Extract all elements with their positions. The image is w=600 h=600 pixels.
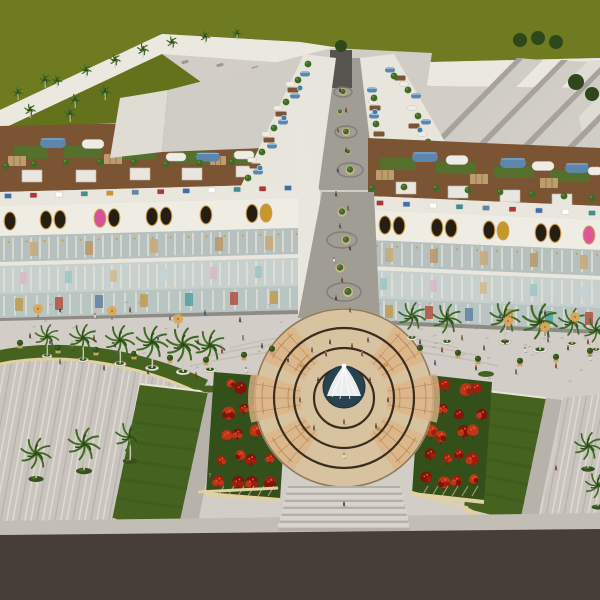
roof-tree: [63, 159, 70, 166]
tree: [549, 35, 563, 49]
shop-sign: [106, 191, 113, 196]
roof-cabin: [182, 168, 202, 180]
white-canopy: [274, 106, 283, 111]
roof-tree: [415, 113, 422, 120]
storefront-interior: [480, 251, 488, 265]
brand-oval-sign: [379, 216, 391, 234]
entry-steps: [278, 486, 410, 531]
shop-sign: [132, 190, 139, 195]
pergola: [470, 174, 488, 184]
storefront-interior: [185, 293, 193, 306]
roof-tree: [283, 99, 290, 106]
shop-sign: [259, 186, 266, 191]
planter-shrub: [131, 351, 137, 360]
roof-cabin: [76, 170, 96, 182]
roof-tree: [401, 184, 408, 191]
storefront-interior: [215, 237, 223, 251]
roof-terrace: [264, 138, 275, 143]
brand-oval-sign: [260, 204, 272, 222]
step: [285, 495, 403, 500]
shop-sign: [483, 206, 490, 211]
roof-tree: [305, 61, 312, 68]
roof-tree: [373, 121, 380, 128]
shop-sign: [234, 187, 241, 192]
storefront-interior: [425, 306, 433, 319]
shop-sign: [456, 204, 463, 209]
shop-sign: [5, 194, 12, 199]
umbrella: [297, 85, 303, 91]
planter-shrub: [17, 340, 23, 349]
roof-tree: [295, 77, 302, 84]
roof-tree: [369, 185, 376, 192]
planter-shrub: [417, 345, 423, 354]
roof-tree: [465, 187, 472, 194]
planter-shrub: [203, 357, 209, 366]
storefront-interior: [210, 267, 217, 279]
storefront-interior: [380, 278, 387, 290]
white-canopy: [408, 106, 417, 111]
white-canopy: [446, 156, 468, 165]
roof-tree: [163, 161, 170, 168]
brand-oval-sign: [246, 204, 258, 222]
storefront-interior: [110, 270, 117, 282]
roof-tree: [97, 159, 104, 166]
planter-shrub: [93, 347, 99, 356]
brand-oval-sign: [445, 219, 457, 237]
storefront-interior: [430, 249, 438, 263]
planter-shrub: [269, 346, 275, 355]
roof-terrace: [409, 124, 420, 129]
storefront-interior: [580, 286, 587, 298]
storefront-interior: [530, 284, 537, 296]
planter-shrub: [517, 358, 523, 367]
white-canopy: [262, 132, 271, 137]
step: [282, 509, 407, 514]
storefront-interior: [95, 295, 103, 308]
shop-sign: [403, 202, 410, 207]
shop-sign: [30, 193, 37, 198]
white-canopy: [400, 82, 409, 87]
storefront-interior: [430, 280, 437, 292]
blue-canopy: [565, 163, 589, 173]
shop-sign: [55, 192, 62, 197]
roof-tree: [271, 125, 278, 132]
spray-crest: [342, 364, 347, 369]
roof-tree: [131, 159, 138, 166]
roof-tree: [245, 175, 252, 182]
pergola: [540, 178, 558, 188]
foreground-road: [0, 529, 600, 600]
shop-sign: [183, 188, 190, 193]
white-canopy: [532, 162, 554, 171]
roof-cabin: [130, 168, 150, 180]
storefront-interior: [580, 255, 588, 269]
brand-oval-sign: [549, 224, 561, 242]
roof-lawn: [380, 158, 416, 170]
planter-shrub: [475, 356, 481, 365]
storefront-interior: [585, 312, 593, 325]
blue-canopy: [40, 138, 66, 148]
storefront-interior: [255, 266, 262, 278]
planter-shrub: [241, 352, 247, 361]
roof-tree: [3, 163, 10, 170]
roof-tree: [371, 95, 378, 102]
white-canopy: [166, 153, 186, 161]
brand-oval-sign: [54, 210, 66, 228]
brand-oval-sign: [483, 221, 495, 239]
storefront-interior: [30, 242, 38, 256]
brand-oval-sign: [431, 219, 443, 237]
pergola: [8, 156, 26, 166]
gate-tree: [335, 40, 347, 52]
roof-tree: [529, 191, 536, 198]
storefront-interior: [15, 298, 23, 311]
brand-oval-sign: [200, 206, 212, 224]
storefront-interior: [65, 271, 72, 283]
shop-sign: [81, 191, 88, 196]
brand-oval-sign: [583, 226, 595, 244]
blue-canopy: [412, 152, 438, 162]
brand-oval-sign: [393, 217, 405, 235]
white-canopy: [248, 158, 257, 163]
roof-tree: [497, 189, 504, 196]
umbrella: [372, 109, 378, 115]
shop-sign: [562, 209, 569, 214]
roof-tree: [405, 87, 412, 94]
planter-shrub: [553, 354, 559, 363]
storefront-interior: [230, 292, 238, 305]
umbrella: [257, 165, 263, 171]
planter-shrub: [455, 350, 461, 359]
brand-oval-sign: [40, 211, 52, 229]
shop-sign: [285, 186, 292, 191]
storefront-interior: [270, 291, 278, 304]
storefront-interior: [465, 308, 473, 321]
white-canopy: [82, 140, 104, 149]
roof-tree: [197, 160, 204, 167]
storefront-interior: [385, 305, 393, 318]
shop-sign: [509, 207, 516, 212]
step: [278, 523, 409, 528]
umbrella: [417, 127, 423, 133]
shop-sign: [377, 201, 384, 206]
step: [280, 516, 408, 521]
roof-tree: [433, 185, 440, 192]
brand-oval-sign: [4, 212, 16, 230]
roof-tree: [259, 149, 266, 156]
storefront-interior: [20, 272, 27, 284]
roof-tree: [589, 195, 596, 202]
roof-terrace: [288, 88, 299, 93]
tree: [513, 33, 527, 47]
roof-cabin: [22, 170, 42, 182]
pergola: [376, 170, 394, 180]
shop-sign: [430, 203, 437, 208]
shop-sign: [589, 211, 596, 216]
storefront-interior: [480, 282, 487, 294]
roof-tree: [391, 73, 398, 80]
step: [287, 488, 401, 493]
tree: [585, 87, 599, 101]
tree: [568, 74, 584, 90]
shop-sign: [536, 208, 543, 213]
shop-sign: [208, 188, 215, 193]
scene-canvas: Aerial 3D architectural rendering of a c…: [0, 0, 600, 600]
planter-shrub: [167, 355, 173, 364]
roof-terrace: [374, 132, 385, 137]
storefront-interior: [385, 248, 393, 262]
roof-tree: [31, 161, 38, 168]
oval-lawn: [478, 371, 494, 377]
storefront-interior: [140, 294, 148, 307]
brand-oval-sign: [108, 209, 120, 227]
planter-shrub: [55, 345, 61, 354]
brand-oval-sign: [535, 224, 547, 242]
architectural-render: Aerial 3D architectural rendering of a c…: [0, 0, 600, 600]
roof-tree: [561, 193, 568, 200]
white-canopy: [588, 167, 600, 175]
brand-oval-sign: [146, 208, 158, 226]
storefront-interior: [265, 236, 273, 250]
roof-cabin: [448, 186, 468, 198]
shop-sign: [157, 189, 164, 194]
roof-tree: [229, 159, 236, 166]
tree: [531, 31, 545, 45]
storefront-interior: [530, 253, 538, 267]
umbrella: [281, 115, 287, 121]
storefront-interior: [85, 241, 93, 255]
white-canopy: [286, 82, 295, 87]
blue-canopy: [500, 158, 526, 168]
storefront-interior: [150, 239, 158, 253]
brand-oval-sign: [160, 207, 172, 225]
brand-oval-sign: [497, 222, 509, 240]
storefront-interior: [160, 269, 167, 281]
brand-oval-sign: [94, 209, 106, 227]
